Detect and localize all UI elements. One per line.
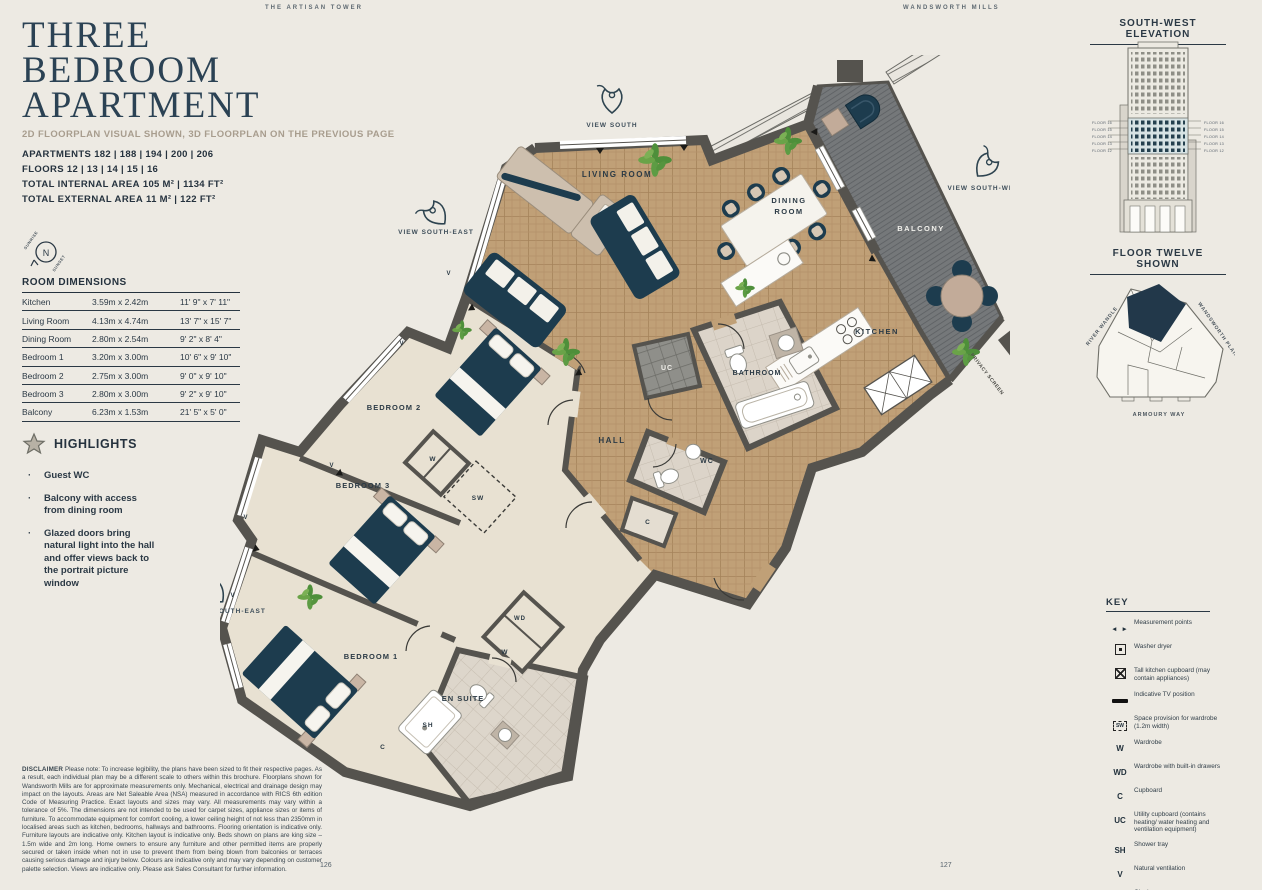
svg-text:V: V (446, 271, 451, 277)
compass: NSUNRISESUNSET (24, 230, 70, 276)
info-row: APARTMENTS 182 | 188 | 194 | 200 | 206 (22, 147, 223, 162)
svg-text:UC: UC (661, 365, 673, 372)
key-item: SHShower tray (1106, 840, 1228, 858)
key-item: CCupboard (1106, 786, 1228, 804)
key-item: VNatural ventilation (1106, 864, 1228, 882)
key-item: Indicative TV position (1106, 690, 1228, 708)
dimension-row: Bedroom 13.20m x 3.00m10' 6" x 9' 10" (22, 348, 240, 366)
svg-text:V: V (230, 593, 235, 599)
svg-text:BEDROOM 1: BEDROOM 1 (344, 652, 398, 661)
site-plan: RIVER WANDLEWANDSWORTH PLAINARMOURY WAY (1085, 272, 1235, 432)
svg-text:EN SUITE: EN SUITE (442, 694, 485, 703)
info-row: FLOORS 12 | 13 | 14 | 15 | 16 (22, 162, 223, 177)
info-row: TOTAL EXTERNAL AREA 11 M² | 122 FT² (22, 192, 223, 207)
brand-left: THE ARTISAN TOWER (265, 5, 363, 11)
svg-text:VIEW SOUTH: VIEW SOUTH (586, 122, 637, 129)
page-number-left: 126 (320, 862, 332, 869)
dimension-row: Living Room4.13m x 4.74m13' 7" x 15' 7" (22, 311, 240, 329)
svg-text:N: N (43, 248, 50, 258)
svg-text:FLOOR 15: FLOOR 15 (1092, 128, 1112, 132)
svg-text:SH: SH (422, 722, 433, 729)
brand-right: WANDSWORTH MILLS (903, 5, 1000, 11)
svg-text:FLOOR 12: FLOOR 12 (1204, 149, 1224, 153)
key-item: WWardrobe (1106, 738, 1228, 756)
room-dimensions-heading: ROOM DIMENSIONS (22, 277, 240, 293)
svg-text:VIEW SOUTH-WEST: VIEW SOUTH-WEST (947, 185, 1010, 192)
legend-letter: C (1117, 792, 1123, 801)
highlight-item: Guest WC (26, 470, 156, 483)
wardrobe-space-icon: SW (1113, 721, 1127, 731)
svg-text:C: C (380, 744, 386, 751)
apartment-info: APARTMENTS 182 | 188 | 194 | 200 | 206FL… (22, 147, 223, 207)
svg-text:BEDROOM 2: BEDROOM 2 (367, 403, 421, 412)
svg-text:V: V (399, 341, 404, 347)
svg-text:ARMOURY WAY: ARMOURY WAY (1133, 412, 1186, 418)
legend-letter: SH (1114, 846, 1125, 855)
svg-text:W: W (429, 456, 436, 463)
svg-text:WC: WC (700, 458, 714, 465)
room-dimensions-table: Kitchen3.59m x 2.42m11' 9" x 7' 11"Livin… (22, 293, 240, 422)
svg-text:BATHROOM: BATHROOM (733, 370, 782, 377)
svg-text:FLOOR 15: FLOOR 15 (1204, 128, 1224, 132)
dimension-row: Kitchen3.59m x 2.42m11' 9" x 7' 11" (22, 293, 240, 311)
legend-letter: WD (1113, 768, 1126, 777)
dimension-row: Balcony6.23m x 1.53m21' 5" x 5' 0" (22, 403, 240, 421)
key-legend: KEY ◄ ►Measurement pointsWasher dryerTal… (1106, 597, 1228, 890)
south-west-elevation-drawing: FLOOR 16FLOOR 15FLOOR 14FLOOR 13FLOOR 12… (1090, 36, 1224, 246)
svg-text:FLOOR 14: FLOOR 14 (1204, 135, 1224, 139)
highlights: HIGHLIGHTS Guest WCBalcony with access f… (22, 432, 172, 600)
svg-text:VIEW SOUTH-EAST: VIEW SOUTH-EAST (220, 608, 266, 615)
info-row: TOTAL INTERNAL AREA 105 M² | 1134 FT² (22, 177, 223, 192)
key-item: UCUtility cupboard (contains heating/ wa… (1106, 810, 1228, 834)
svg-text:WD: WD (514, 616, 526, 622)
legend-letter: V (1117, 870, 1122, 879)
highlight-item: Glazed doors bring natural light into th… (26, 528, 156, 591)
svg-text:DINING: DINING (771, 196, 806, 205)
key-item: SWSpace provision for wardrobe (1.2m wid… (1106, 714, 1228, 732)
svg-text:FLOOR 16: FLOOR 16 (1204, 121, 1224, 125)
star-icon (22, 432, 46, 456)
tv-position-icon (1112, 699, 1128, 703)
title-line-1: THREE (22, 18, 261, 53)
room-dimensions: ROOM DIMENSIONS Kitchen3.59m x 2.42m11' … (22, 277, 240, 422)
measurement-points-icon: ◄ ► (1111, 626, 1129, 633)
highlights-heading: HIGHLIGHTS (54, 437, 137, 451)
svg-text:HALL: HALL (598, 436, 625, 445)
svg-text:SW: SW (472, 495, 484, 502)
view-south-icon (597, 86, 622, 113)
svg-text:C: C (645, 519, 651, 526)
svg-text:V: V (329, 463, 334, 469)
dimension-row: Bedroom 32.80m x 3.00m9' 2" x 9' 10" (22, 384, 240, 402)
svg-text:FLOOR 16: FLOOR 16 (1092, 121, 1112, 125)
washer-dryer-icon (1115, 644, 1126, 655)
svg-text:BALCONY: BALCONY (897, 224, 945, 233)
view-south-west-icon (966, 145, 1003, 182)
svg-text:ROOM: ROOM (774, 207, 803, 216)
svg-text:FLOOR 14: FLOOR 14 (1092, 135, 1112, 139)
svg-text:W: W (501, 649, 508, 656)
disclaimer-label: DISCLAIMER (22, 766, 63, 773)
floor-plan: LIVING ROOMDININGROOMKITCHENBALCONYHALLB… (220, 55, 1010, 815)
key-item: WDWardrobe with built-in drawers (1106, 762, 1228, 780)
legend-letter: W (1116, 744, 1124, 753)
highlights-list: Guest WCBalcony with access from dining … (26, 470, 156, 590)
svg-text:SUNSET: SUNSET (51, 254, 66, 273)
svg-text:VIEW SOUTH-EAST: VIEW SOUTH-EAST (398, 229, 474, 236)
svg-text:BEDROOM 3: BEDROOM 3 (336, 481, 390, 490)
svg-text:FLOOR 13: FLOOR 13 (1092, 142, 1112, 146)
dimension-row: Dining Room2.80m x 2.54m9' 2" x 8' 4" (22, 329, 240, 347)
tall-cupboard-icon (1115, 668, 1126, 679)
key-item: Tall kitchen cupboard (may contain appli… (1106, 666, 1228, 684)
floor-shown-heading: FLOOR TWELVE SHOWN (1090, 248, 1226, 275)
svg-text:KITCHEN: KITCHEN (855, 327, 899, 336)
brochure-page: THE ARTISAN TOWER WANDSWORTH MILLS THREE… (0, 0, 1262, 890)
svg-text:FLOOR 12: FLOOR 12 (1092, 149, 1112, 153)
key-item: Washer dryer (1106, 642, 1228, 660)
key-heading: KEY (1106, 597, 1210, 612)
page-number-right: 127 (940, 862, 952, 869)
svg-text:FLOOR 13: FLOOR 13 (1204, 142, 1224, 146)
key-item: ◄ ►Measurement points (1106, 618, 1228, 636)
dimension-row: Bedroom 22.75m x 3.00m9' 0" x 9' 10" (22, 366, 240, 384)
svg-text:LIVING ROOM: LIVING ROOM (582, 170, 652, 179)
highlight-item: Balcony with access from dining room (26, 493, 156, 518)
svg-text:V: V (243, 515, 248, 521)
svg-text:PRIVACY SCREEN: PRIVACY SCREEN (969, 352, 1005, 396)
compass-arrow-icon (31, 260, 38, 266)
legend-letter: UC (1114, 816, 1126, 825)
